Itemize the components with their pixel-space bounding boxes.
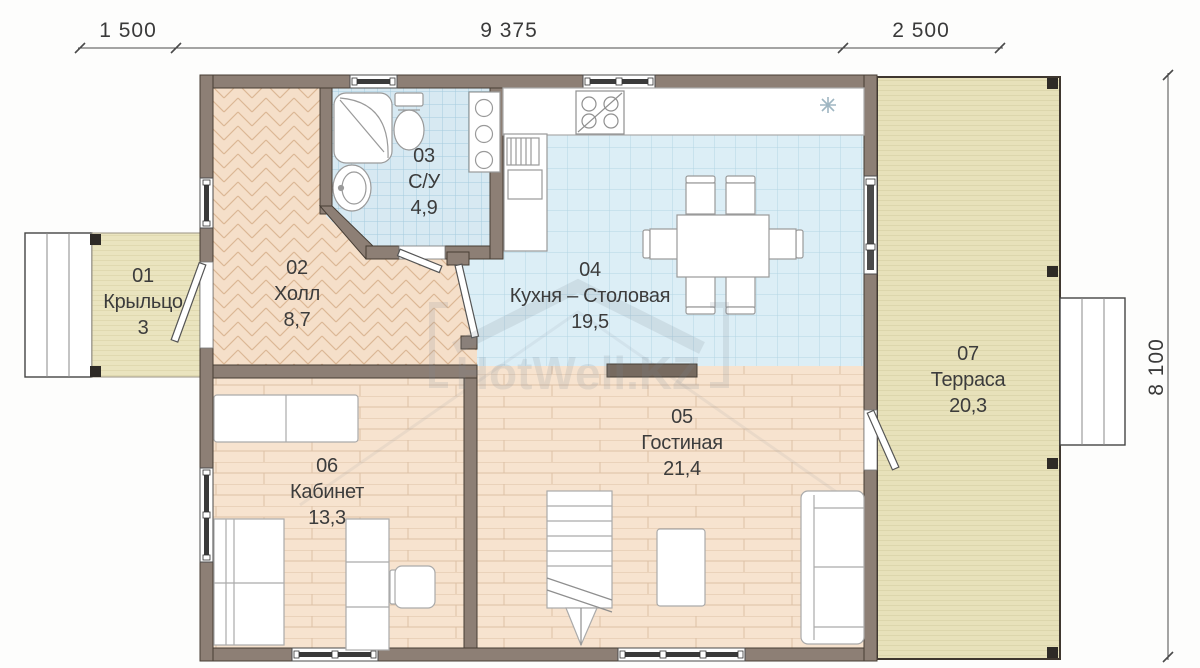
window-office-left xyxy=(200,468,213,562)
terrace-post xyxy=(1047,647,1058,658)
terrace-area xyxy=(877,77,1125,659)
wall-bathroom-bottom-left xyxy=(366,246,399,259)
toilet-icon xyxy=(394,93,424,150)
wall-hall-bottom xyxy=(213,365,477,378)
tall-cabinet xyxy=(504,134,547,251)
wall-bathroom-left xyxy=(320,88,332,214)
wall-right xyxy=(864,75,877,661)
chair xyxy=(686,307,715,314)
shower-icon xyxy=(334,93,392,163)
window-left-upper xyxy=(200,178,213,228)
floor-plan-drawing: HotWell.KZ xyxy=(0,0,1200,668)
chair xyxy=(796,230,803,258)
porch-area xyxy=(25,233,200,377)
chair xyxy=(686,183,715,214)
dimension-top-2: 9 375 xyxy=(480,20,538,42)
dimension-top-3: 2 500 xyxy=(892,20,950,42)
chair xyxy=(650,229,678,259)
office-chair xyxy=(390,566,435,608)
sofa xyxy=(801,491,864,644)
terrace-post xyxy=(1047,266,1058,277)
wall-left xyxy=(200,75,213,661)
terrace-post xyxy=(1047,458,1058,469)
window-bathroom-top xyxy=(350,75,397,88)
coffee-table xyxy=(657,529,705,606)
office-desk-center xyxy=(346,519,389,650)
wall-hall-kitchen-post xyxy=(447,252,469,265)
chair xyxy=(726,176,755,183)
wall-top xyxy=(200,75,877,88)
sink-icon xyxy=(333,165,371,211)
dining-table xyxy=(677,215,769,277)
kitchen-counter xyxy=(503,88,864,135)
window-kitchen-top xyxy=(583,75,655,88)
dimension-top-1: 1 500 xyxy=(99,20,157,42)
washer-shelf-icon xyxy=(469,92,500,172)
chair xyxy=(768,229,796,259)
office-sofa xyxy=(214,395,358,442)
chair xyxy=(726,183,755,214)
snowflake-icon xyxy=(820,97,836,113)
wall-office-living xyxy=(464,378,477,648)
window-living-bottom xyxy=(618,648,745,661)
chair xyxy=(726,276,755,307)
terrace-post xyxy=(1047,78,1058,89)
porch-steps xyxy=(25,233,92,377)
chair xyxy=(686,176,715,183)
stove-icon xyxy=(576,91,624,134)
porch-post xyxy=(90,366,101,377)
floor-plan-page: HotWell.KZ 1 500 9 375 2 500 8 100 01 Кр… xyxy=(0,0,1200,668)
watermark-text: HotWell.KZ xyxy=(456,347,700,399)
chair xyxy=(726,307,755,314)
terrace-deck xyxy=(877,77,1060,659)
office-desk-left xyxy=(214,519,284,645)
chair xyxy=(643,230,650,258)
kitchen-terrace-door xyxy=(864,176,877,274)
dimension-right: 8 100 xyxy=(1146,327,1168,407)
porch-post xyxy=(90,234,101,245)
terrace-steps xyxy=(1060,298,1125,445)
